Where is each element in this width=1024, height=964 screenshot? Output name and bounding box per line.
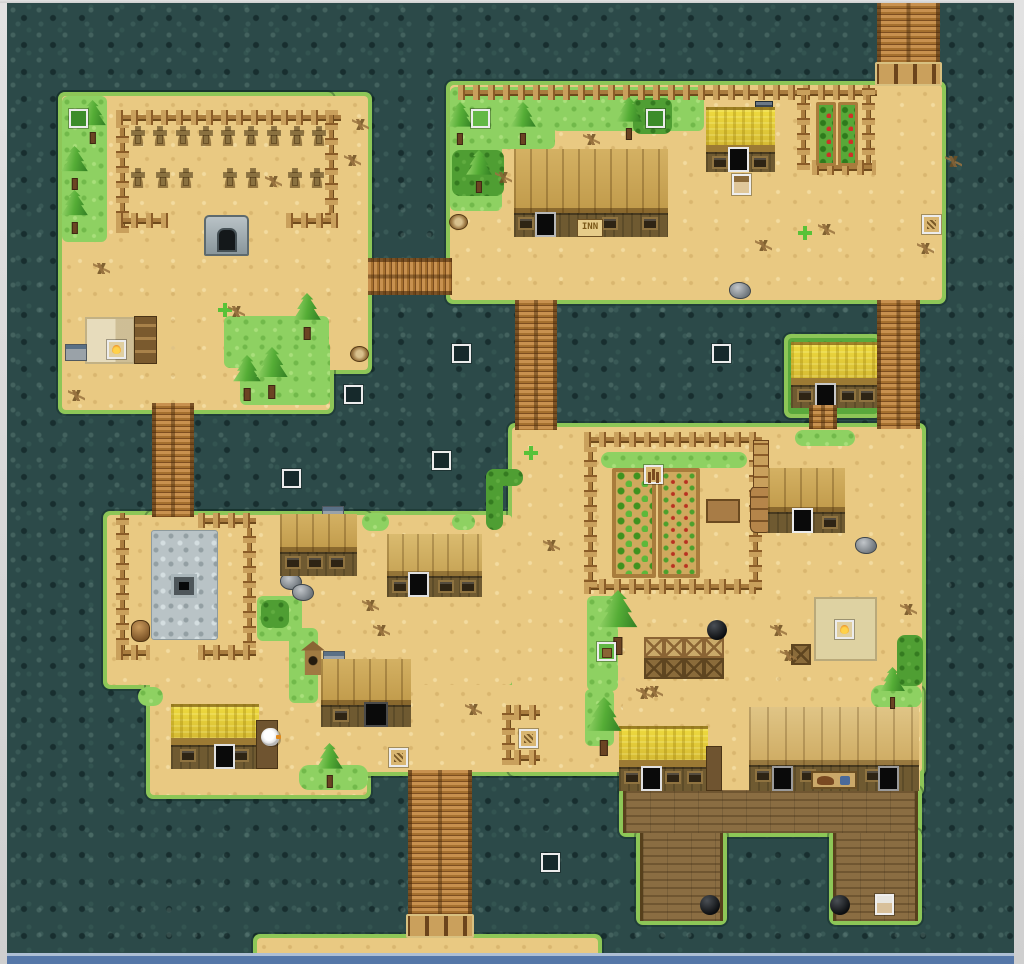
- stable-door[interactable]: [878, 766, 899, 791]
- event-sign-inn-east[interactable]: [922, 215, 941, 234]
- window-frame-left: [0, 0, 7, 964]
- debris: [945, 156, 962, 167]
- storehouse-west-roof: [280, 514, 357, 552]
- grave-cross: [130, 126, 146, 146]
- map-objects-layer: INN: [0, 0, 1024, 964]
- window-frame-top: [0, 0, 1024, 3]
- crop-bed: [816, 102, 836, 166]
- window: [602, 217, 618, 230]
- debris: [373, 625, 390, 636]
- event-water-4[interactable]: [432, 451, 451, 470]
- event-inn-grove-1[interactable]: [471, 109, 490, 128]
- fence: [116, 110, 341, 125]
- fence: [116, 645, 150, 660]
- fence: [116, 213, 168, 228]
- house-south-door[interactable]: [641, 766, 662, 791]
- crypt: [204, 215, 249, 256]
- grave-cross: [178, 168, 194, 188]
- debris: [465, 704, 482, 715]
- window: [712, 156, 728, 169]
- horse-sign: [811, 771, 857, 789]
- bridge-south: [408, 770, 472, 938]
- bridge-east: [877, 300, 920, 429]
- event-water-1[interactable]: [452, 344, 471, 363]
- grave-cross: [222, 168, 238, 188]
- pot: [707, 620, 727, 640]
- inn-roof: [514, 149, 668, 213]
- debris: [583, 134, 600, 145]
- event-inn-grove-2[interactable]: [646, 109, 665, 128]
- fence: [116, 513, 129, 660]
- shelf: [134, 316, 157, 364]
- npc-villager-north[interactable]: [732, 174, 751, 195]
- shop-south-door[interactable]: [214, 744, 235, 769]
- window: [755, 769, 771, 782]
- islet-steps: [809, 405, 837, 429]
- grass-patch: [486, 469, 523, 486]
- grave-cross: [175, 126, 191, 146]
- window: [180, 749, 196, 762]
- house-south-roof: [619, 726, 708, 767]
- crated: [664, 658, 684, 679]
- debris: [68, 390, 85, 401]
- fence: [514, 705, 540, 720]
- grave-cross: [289, 126, 305, 146]
- crop-bed: [658, 468, 700, 578]
- bridge-north-end: [875, 62, 942, 86]
- rock: [729, 282, 751, 299]
- window: [392, 580, 408, 593]
- fence: [458, 85, 877, 100]
- debris: [265, 176, 282, 187]
- bridge-graveyard-village: [152, 403, 194, 517]
- grave-cross: [152, 126, 168, 146]
- bridge-south-end: [406, 914, 474, 938]
- stump: [350, 346, 369, 362]
- debris: [755, 240, 772, 251]
- cratel: [664, 637, 684, 658]
- event-campfire-east[interactable]: [835, 620, 854, 639]
- workshop-east-door[interactable]: [792, 508, 813, 533]
- debris: [917, 243, 934, 254]
- fence: [862, 88, 875, 170]
- grave-cross: [245, 168, 261, 188]
- window: [624, 771, 640, 784]
- grave-cross: [311, 126, 327, 146]
- barrel: [131, 620, 150, 642]
- tree: [255, 347, 289, 402]
- grass-patch: [362, 513, 389, 531]
- event-scarecrow[interactable]: [644, 465, 663, 484]
- window-frame-right: [1014, 0, 1024, 964]
- tree: [879, 667, 906, 711]
- tree: [509, 102, 537, 147]
- fence: [514, 750, 540, 765]
- window: [333, 709, 349, 722]
- grave-cross: [130, 168, 146, 188]
- cratel: [644, 637, 664, 658]
- window: [642, 217, 658, 230]
- window: [822, 516, 838, 529]
- well[interactable]: [171, 574, 197, 598]
- npc-dock-elder[interactable]: [875, 894, 894, 915]
- fence: [198, 513, 256, 528]
- horse-icon: [817, 776, 834, 785]
- sparkle: [798, 226, 812, 240]
- grave-cross: [266, 126, 282, 146]
- grave-cross: [287, 168, 303, 188]
- window: [518, 217, 534, 230]
- stable-door[interactable]: [772, 766, 793, 791]
- fence: [286, 213, 338, 228]
- bench: [706, 499, 740, 523]
- grave-cross: [220, 126, 236, 146]
- grass-patch: [452, 514, 475, 530]
- workshop-east-roof: [768, 468, 845, 512]
- house-central-roof: [387, 534, 482, 576]
- window: [438, 580, 454, 593]
- debris: [344, 155, 361, 166]
- window: [307, 556, 323, 569]
- window: [797, 389, 813, 402]
- fence: [198, 645, 256, 660]
- stable-roof: [749, 707, 919, 765]
- tree: [292, 293, 322, 342]
- event-grove-item[interactable]: [597, 642, 616, 661]
- pillar: [753, 440, 769, 488]
- house-central-door[interactable]: [408, 572, 429, 597]
- window: [233, 749, 249, 762]
- grass-patch: [601, 452, 747, 468]
- debris: [636, 688, 653, 699]
- debris: [352, 119, 369, 130]
- grave-cross: [198, 126, 214, 146]
- debris: [495, 172, 512, 183]
- grass-patch: [795, 430, 855, 446]
- inn-door[interactable]: [535, 212, 556, 237]
- crated: [704, 658, 724, 679]
- crop-bed: [838, 102, 858, 166]
- window: [329, 556, 345, 569]
- stump: [449, 214, 468, 230]
- debris: [818, 224, 835, 235]
- event-campfire-hut[interactable]: [107, 340, 126, 359]
- window: [665, 771, 681, 784]
- tree: [60, 146, 89, 192]
- storehouse-south-door[interactable]: [364, 702, 388, 727]
- game-map-viewport: INN: [0, 0, 1024, 964]
- event-water-6[interactable]: [541, 853, 560, 872]
- event-water-5[interactable]: [712, 344, 731, 363]
- window: [687, 771, 703, 784]
- bridge-inn-village: [515, 300, 557, 430]
- stove: [65, 344, 87, 361]
- grave-cross: [155, 168, 171, 188]
- inn-sign: INN: [577, 219, 603, 237]
- pot: [830, 895, 850, 915]
- tree: [315, 743, 344, 790]
- window: [859, 389, 875, 402]
- sparkle: [524, 446, 538, 460]
- rock: [855, 537, 877, 554]
- islet-house-roof: [791, 342, 878, 385]
- debris: [228, 306, 245, 317]
- tree: [446, 102, 474, 147]
- event-sign-south[interactable]: [389, 748, 408, 767]
- fence: [584, 432, 762, 447]
- npc-goose[interactable]: [261, 728, 279, 746]
- shop-south-roof: [171, 704, 259, 745]
- storehouse-south-roof: [321, 659, 411, 705]
- bridge-graveyard-inn: [368, 258, 452, 295]
- event-water-3[interactable]: [282, 469, 301, 488]
- grass-patch: [261, 600, 289, 628]
- cratel: [684, 637, 704, 658]
- grass-patch: [138, 687, 163, 706]
- tree: [60, 190, 89, 236]
- house-south-annex: [706, 746, 722, 791]
- map-south-edge-water: [7, 953, 1014, 964]
- grave-cross: [243, 126, 259, 146]
- debris: [770, 625, 787, 636]
- saddle-icon: [840, 776, 850, 785]
- cottage-north-roof: [706, 107, 775, 152]
- debris: [780, 650, 797, 661]
- window: [460, 580, 476, 593]
- debris: [900, 604, 917, 615]
- dock: [623, 790, 918, 833]
- rock: [292, 584, 314, 601]
- debris: [543, 540, 560, 551]
- grave-cross: [309, 168, 325, 188]
- cratel: [704, 637, 724, 658]
- window: [752, 156, 768, 169]
- fence: [243, 528, 256, 648]
- crated: [684, 658, 704, 679]
- cottage-north-door[interactable]: [728, 147, 749, 172]
- pot: [700, 895, 720, 915]
- crated: [644, 658, 664, 679]
- window: [840, 389, 856, 402]
- tree: [585, 697, 623, 759]
- event-pen[interactable]: [519, 729, 538, 748]
- fence: [584, 447, 597, 587]
- debris: [93, 263, 110, 274]
- event-grove-nw[interactable]: [69, 109, 88, 128]
- tree: [615, 97, 643, 142]
- crop-bed: [612, 468, 656, 578]
- window: [285, 556, 301, 569]
- fence: [797, 88, 810, 170]
- debris: [362, 600, 379, 611]
- tree: [465, 150, 493, 195]
- event-water-2[interactable]: [344, 385, 363, 404]
